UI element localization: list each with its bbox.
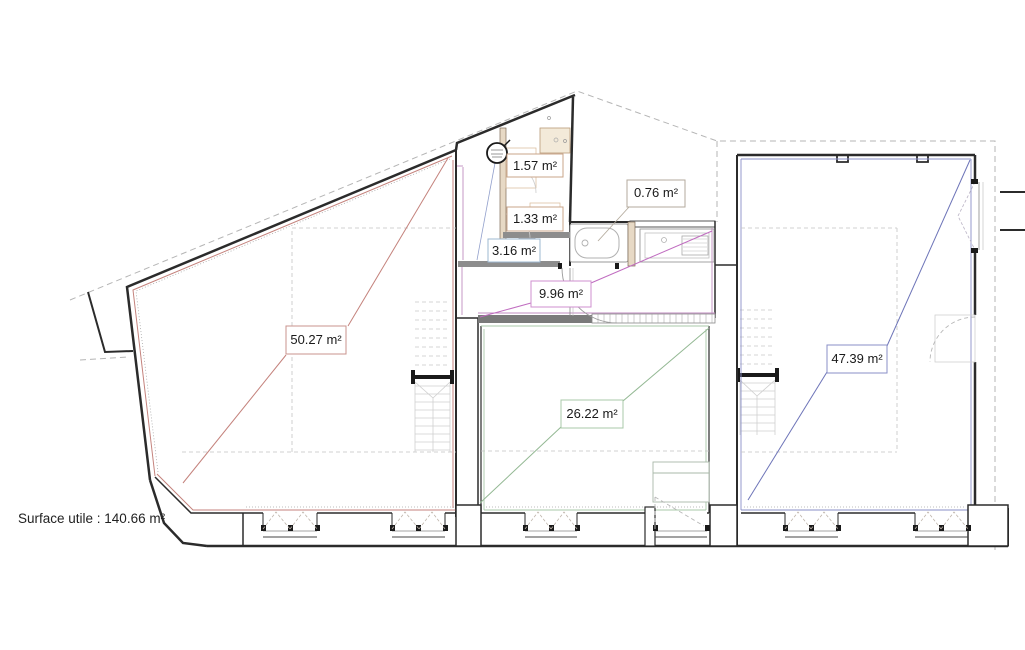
neighbor-wall-right xyxy=(1000,192,1025,230)
neighbor-wall-left xyxy=(88,292,133,352)
window-right-wall xyxy=(958,179,983,253)
room-label-wc-text: 1.33 m² xyxy=(513,211,558,226)
room-label-hallway: 9.96 m² xyxy=(531,281,591,307)
room-label-right: 47.39 m² xyxy=(827,345,887,373)
room-label-bathtub-text: 0.76 m² xyxy=(634,185,679,200)
room-label-bath-entry-text: 3.16 m² xyxy=(492,243,537,258)
room-label-middle: 26.22 m² xyxy=(561,400,623,428)
room-label-hallway-text: 9.96 m² xyxy=(539,286,584,301)
staircase-right xyxy=(737,310,778,435)
floor-plan-canvas: 50.27 m² 26.22 m² 47.39 m² 9.96 m² 1.57 … xyxy=(0,0,1025,650)
floor-plan-page: 50.27 m² 26.22 m² 47.39 m² 9.96 m² 1.57 … xyxy=(0,0,1025,650)
window-jamb-blocks xyxy=(261,525,971,531)
steel-beam-icon xyxy=(412,370,453,384)
surface-total-note: Surface utile : 140.66 m² xyxy=(18,511,166,526)
room-label-bathtub: 0.76 m² xyxy=(627,180,685,207)
room-label-shower-text: 1.57 m² xyxy=(513,158,558,173)
room-label-left-text: 50.27 m² xyxy=(290,332,342,347)
room-label-right-text: 47.39 m² xyxy=(831,351,883,366)
cupboard xyxy=(653,462,709,502)
bottom-wall xyxy=(207,497,1008,546)
room-label-left: 50.27 m² xyxy=(286,326,346,354)
staircase-left xyxy=(412,302,453,452)
room-label-middle-text: 26.22 m² xyxy=(566,406,618,421)
room-label-shower: 1.57 m² xyxy=(507,154,563,177)
steel-beam-icon xyxy=(737,368,778,382)
room-label-bath-entry: 3.16 m² xyxy=(488,239,540,262)
room-right-area-diagonal xyxy=(748,160,970,500)
room-left-area-diagonal xyxy=(183,158,448,483)
glazed-partition xyxy=(592,314,715,323)
room-label-wc: 1.33 m² xyxy=(507,207,563,231)
window-opening-triangles xyxy=(263,512,968,529)
party-wall-left xyxy=(456,318,478,513)
bathtub-fixture xyxy=(570,224,628,262)
door-right-wall xyxy=(930,315,975,362)
